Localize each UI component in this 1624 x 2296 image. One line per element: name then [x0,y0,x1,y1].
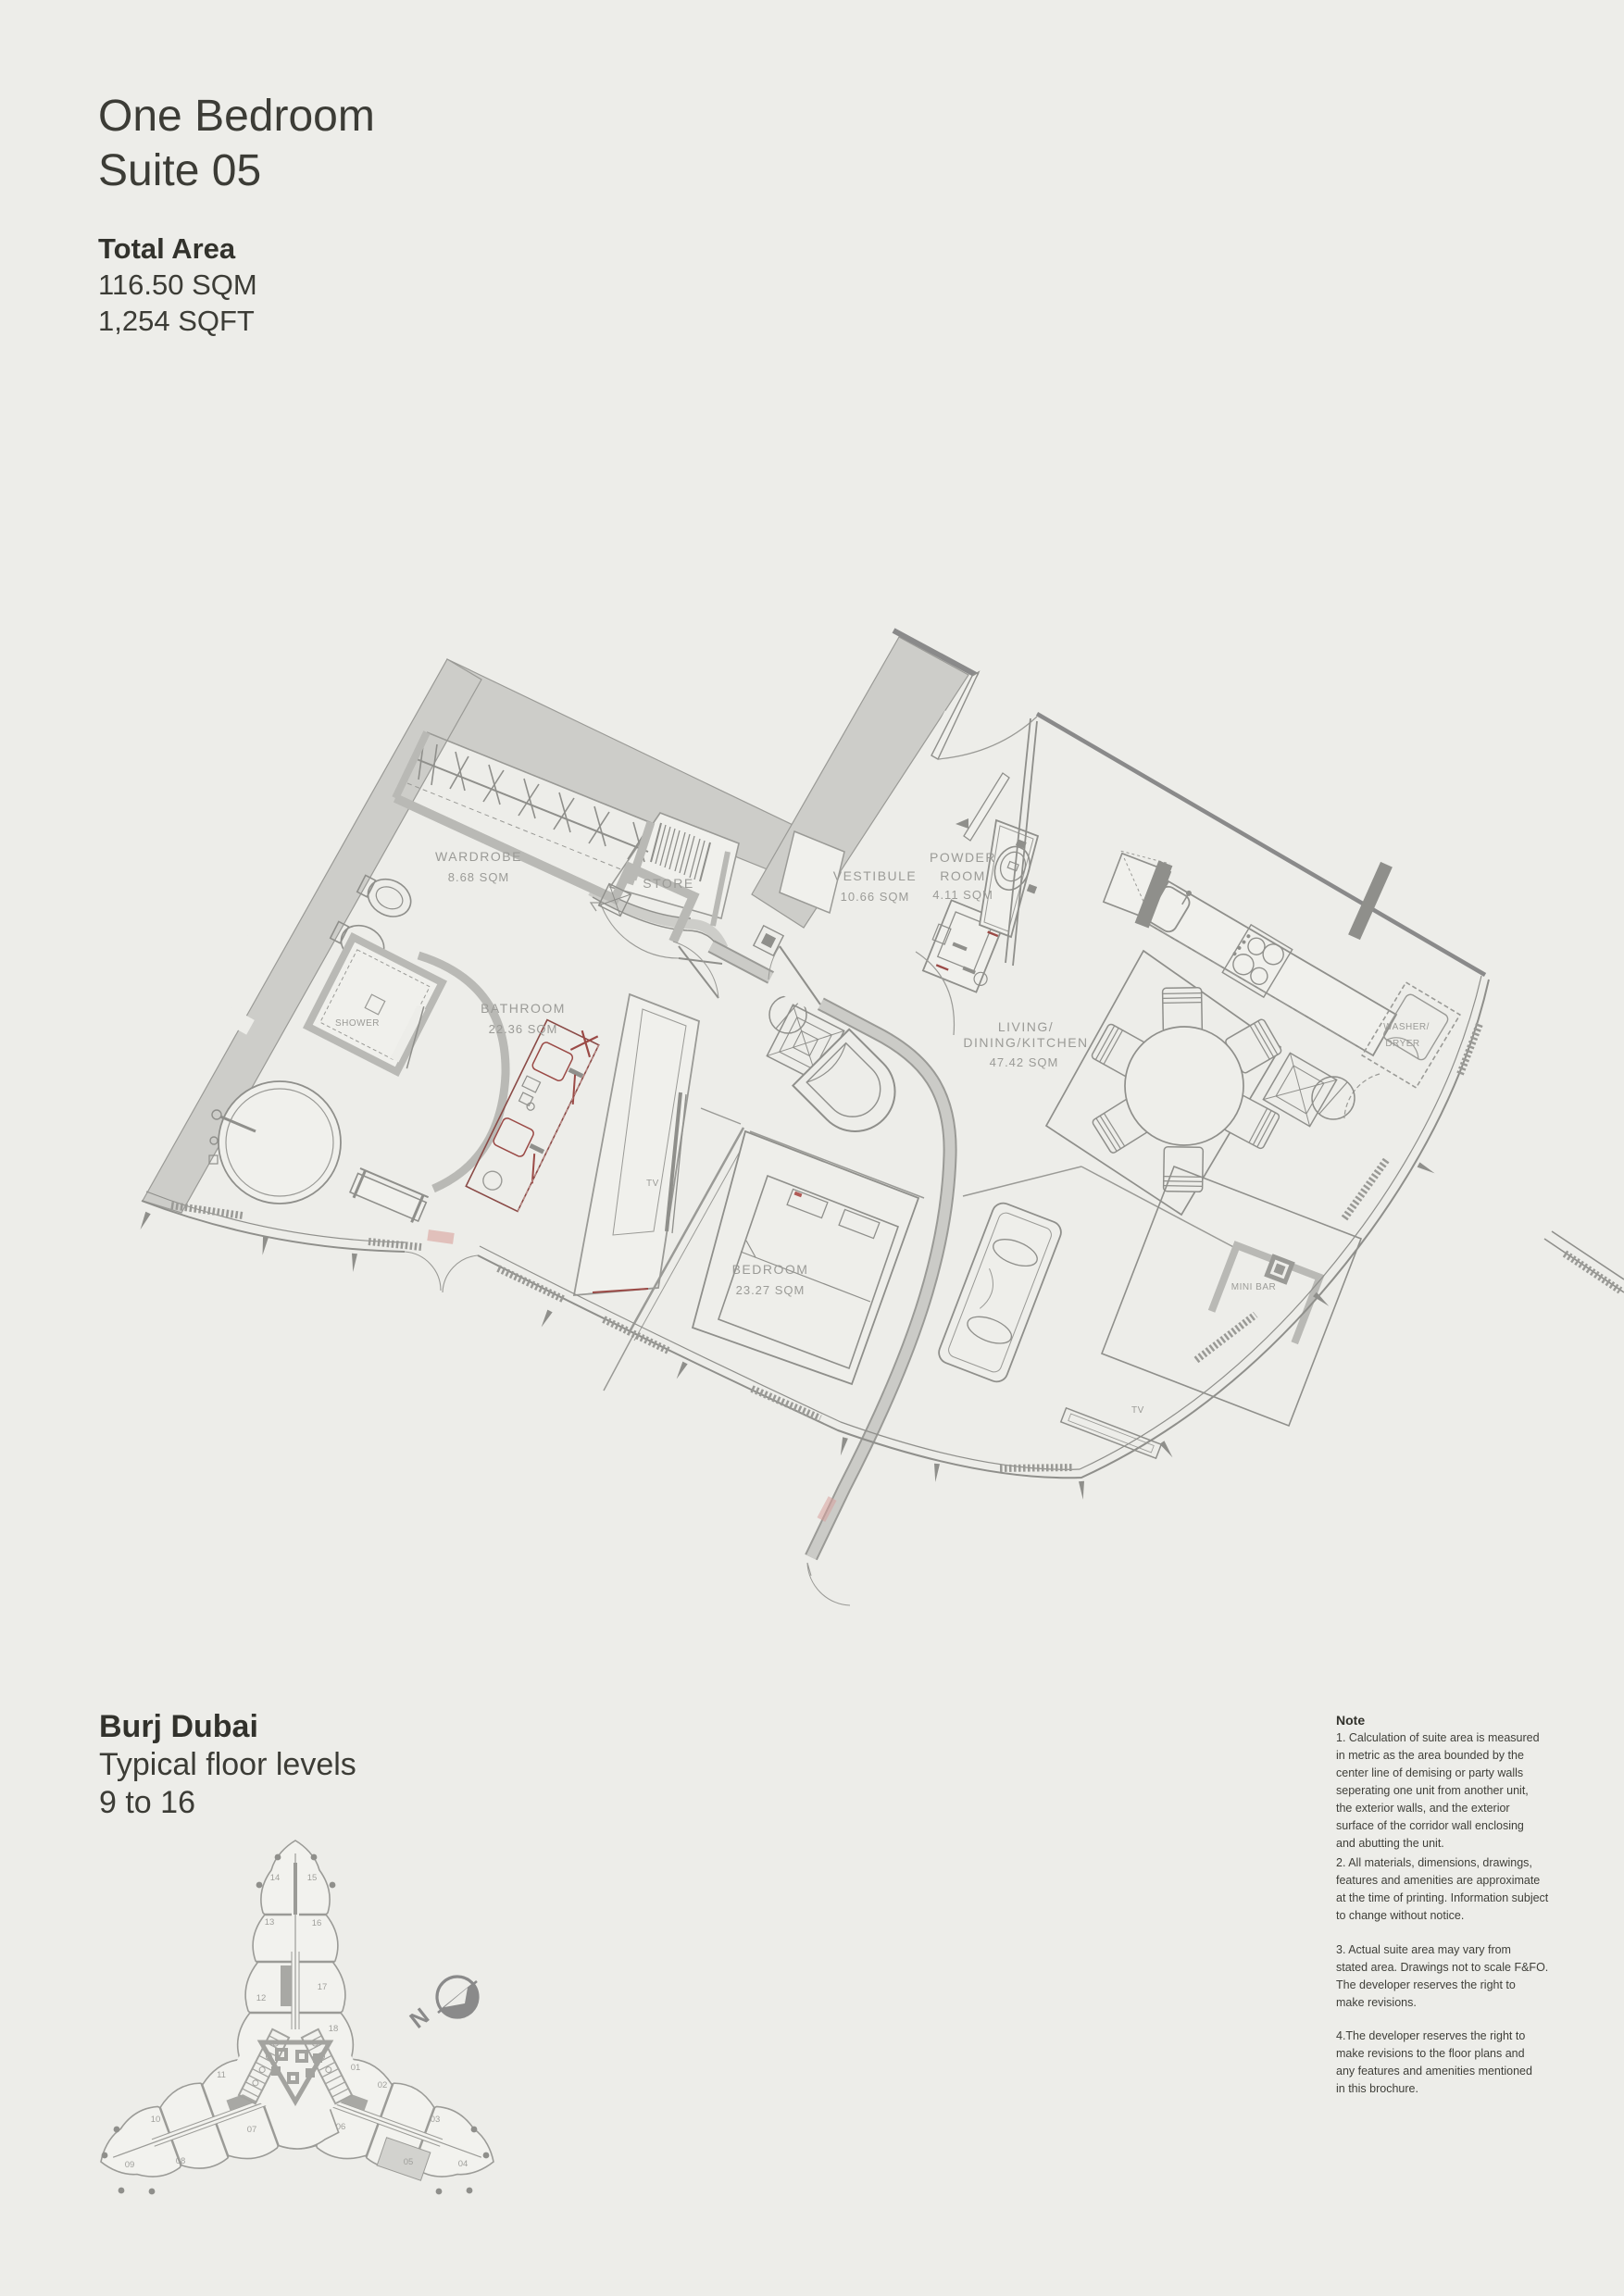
svg-text:06: 06 [336,2122,346,2132]
svg-text:TV: TV [1131,1405,1144,1416]
svg-text:11: 11 [217,2070,226,2080]
svg-text:BEDROOM: BEDROOM [732,1262,809,1277]
svg-text:13: 13 [265,1917,275,1928]
svg-text:One Bedroom: One Bedroom [98,92,375,141]
svg-text:STORE: STORE [643,876,693,891]
svg-text:10.66 SQM: 10.66 SQM [841,890,910,904]
svg-text:BATHROOM: BATHROOM [481,1001,566,1016]
svg-text:1. Calculation of suite area i: 1. Calculation of suite area is measured [1336,1731,1540,1744]
svg-text:22.36 SQM: 22.36 SQM [489,1022,558,1036]
svg-text:17: 17 [318,1982,328,1992]
svg-text:ROOM: ROOM [940,868,986,883]
svg-text:WASHER/: WASHER/ [1383,1022,1430,1032]
svg-text:and abutting the unit.: and abutting the unit. [1336,1837,1444,1850]
svg-text:9 to 16: 9 to 16 [99,1785,195,1820]
svg-text:23.27 SQM: 23.27 SQM [736,1283,806,1297]
svg-text:at the time of printing. Infor: at the time of printing. Information sub… [1336,1891,1549,1904]
svg-text:3. Actual suite area may vary: 3. Actual suite area may vary from [1336,1943,1511,1956]
svg-text:8.68 SQM: 8.68 SQM [448,870,510,884]
svg-text:features and amenities are app: features and amenities are approximate [1336,1874,1540,1887]
svg-text:Note: Note [1336,1713,1365,1728]
svg-text:Burj Dubai: Burj Dubai [99,1709,258,1744]
svg-text:15: 15 [307,1873,318,1883]
svg-text:Suite 05: Suite 05 [98,146,261,195]
svg-text:09: 09 [125,2160,135,2170]
svg-text:to change without notice.: to change without notice. [1336,1909,1464,1922]
svg-text:47.42 SQM: 47.42 SQM [990,1055,1059,1069]
svg-text:05: 05 [404,2157,414,2167]
svg-text:1,254 SQFT: 1,254 SQFT [98,305,255,337]
svg-text:Total Area: Total Area [98,232,236,265]
svg-text:in this brochure.: in this brochure. [1336,2082,1418,2095]
svg-text:any features and amenities men: any features and amenities mentioned [1336,2065,1532,2078]
svg-text:POWDER: POWDER [930,850,996,865]
svg-text:16: 16 [312,1918,322,1928]
svg-text:the exterior walls, and the ex: the exterior walls, and the exterior [1336,1802,1510,1815]
svg-text:The developer reserves the rig: The developer reserves the right to [1336,1978,1516,1991]
svg-text:in metric as the area bounded: in metric as the area bounded by the [1336,1749,1524,1762]
svg-text:seperating one unit from anoth: seperating one unit from another unit, [1336,1784,1529,1797]
svg-text:18: 18 [329,2024,339,2034]
svg-text:center line of demising or par: center line of demising or party walls [1336,1766,1523,1779]
svg-text:4.11 SQM: 4.11 SQM [932,888,993,902]
svg-text:116.50 SQM: 116.50 SQM [98,268,257,301]
svg-text:stated area. Drawings not to s: stated area. Drawings not to scale F&FO. [1336,1961,1548,1974]
svg-text:14: 14 [270,1873,281,1883]
svg-text:MINI BAR: MINI BAR [1231,1282,1276,1292]
svg-text:08: 08 [176,2156,186,2166]
svg-text:10: 10 [151,2115,161,2125]
svg-text:Typical floor levels: Typical floor levels [99,1747,356,1782]
svg-text:07: 07 [247,2125,257,2135]
svg-text:VESTIBULE: VESTIBULE [833,868,918,883]
svg-text:DRYER: DRYER [1385,1039,1419,1049]
svg-text:03: 03 [431,2115,441,2125]
svg-text:SHOWER: SHOWER [335,1018,380,1029]
svg-text:04: 04 [458,2159,468,2169]
svg-text:make revisions to the floor pl: make revisions to the floor plans and [1336,2047,1525,2060]
svg-text:01: 01 [351,2063,361,2073]
svg-text:TV: TV [646,1179,659,1189]
svg-text:make revisions.: make revisions. [1336,1996,1417,2009]
svg-text:02: 02 [378,2080,388,2090]
svg-text:12: 12 [256,1993,267,2003]
svg-text:WARDROBE: WARDROBE [435,849,522,864]
svg-text:surface of the corridor wall e: surface of the corridor wall enclosing [1336,1819,1524,1832]
svg-text:4.The developer reserves the r: 4.The developer reserves the right to [1336,2029,1525,2042]
svg-text:DINING/KITCHEN: DINING/KITCHEN [963,1035,1088,1050]
svg-text:2. All materials, dimensions,: 2. All materials, dimensions, drawings, [1336,1856,1532,1869]
svg-text:LIVING/: LIVING/ [998,1019,1054,1034]
